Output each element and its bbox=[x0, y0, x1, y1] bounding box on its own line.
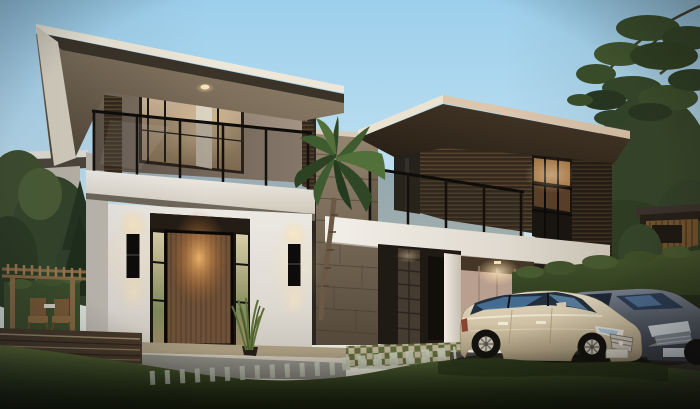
house-render-image bbox=[0, 0, 700, 409]
vignette bbox=[0, 0, 700, 409]
